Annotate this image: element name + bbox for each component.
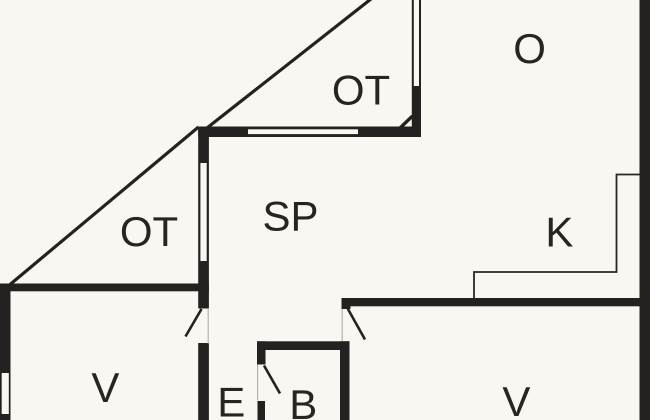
svg-text:V: V <box>91 364 119 411</box>
svg-text:K: K <box>545 208 573 255</box>
svg-text:SP: SP <box>262 193 318 240</box>
svg-text:OT: OT <box>332 67 390 114</box>
svg-text:B: B <box>289 381 317 420</box>
svg-text:V: V <box>502 378 530 420</box>
svg-text:E: E <box>217 379 245 420</box>
svg-text:OT: OT <box>120 208 178 255</box>
svg-text:O: O <box>513 25 546 72</box>
